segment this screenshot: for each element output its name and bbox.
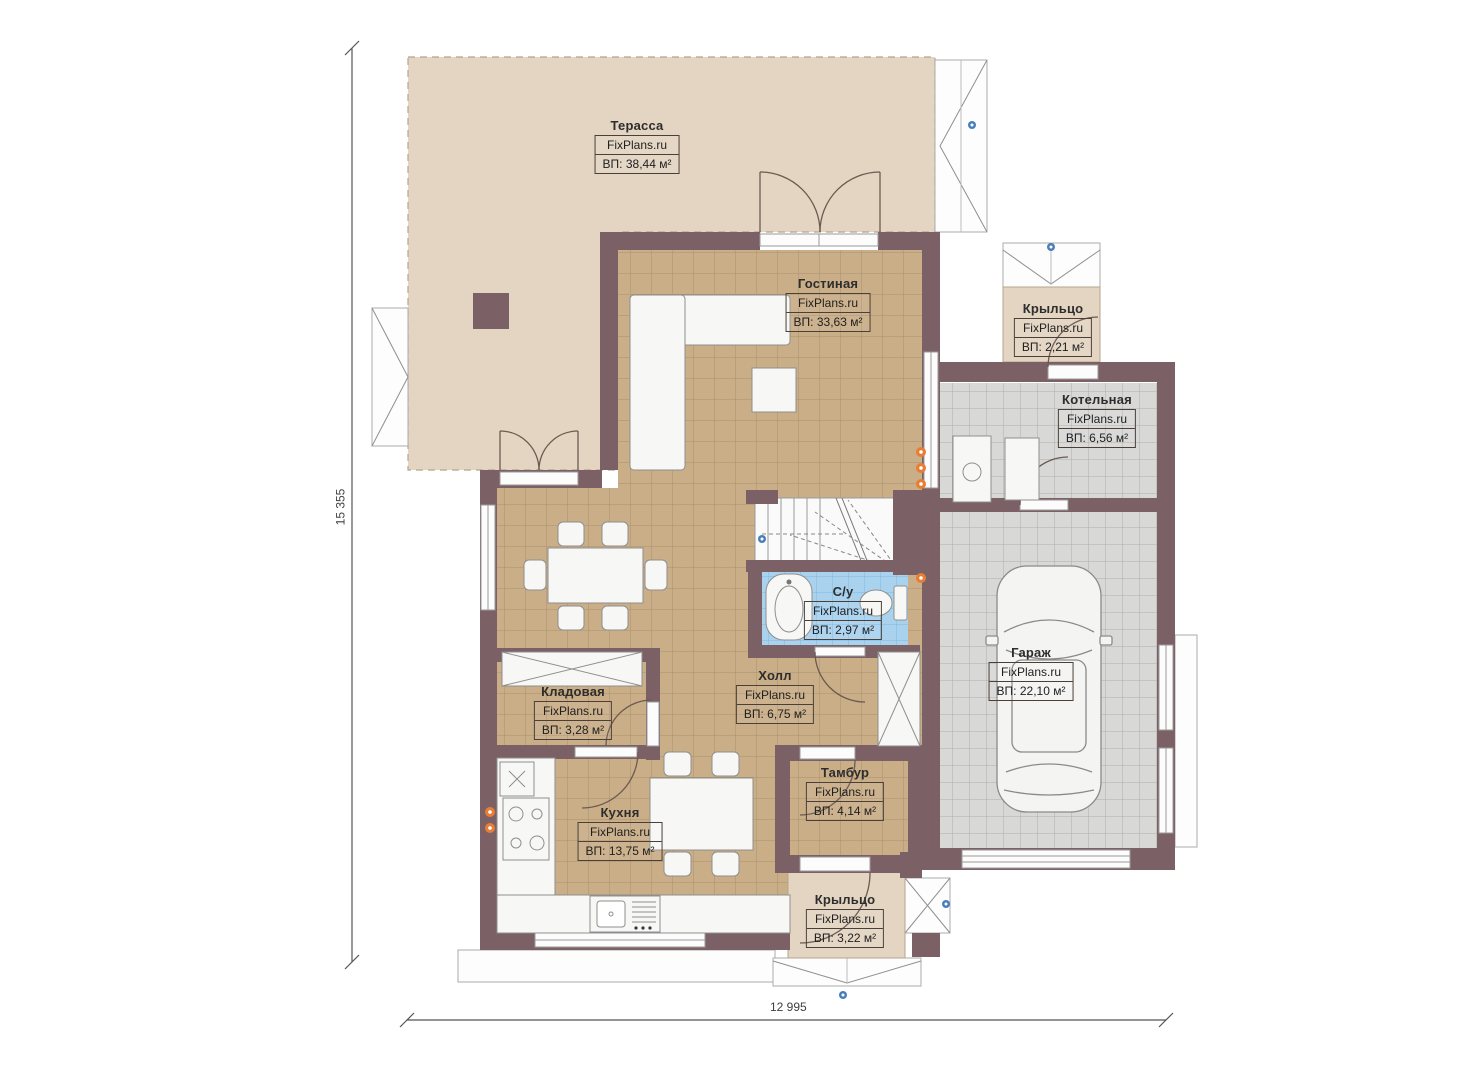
sofa-side [630,295,685,470]
room-info-box: FixPlans.ru ВП: 6,75 м² [736,685,814,724]
floor-plan-drawing [0,0,1474,1080]
room-info-box: FixPlans.ru ВП: 2,21 м² [1014,318,1092,357]
room-label-hall: Холл FixPlans.ru ВП: 6,75 м² [736,668,814,724]
room-info-box: FixPlans.ru ВП: 33,63 м² [786,293,871,332]
toilet-tank [894,586,907,620]
room-name: С/у [804,584,882,599]
room-label-garage: Гараж FixPlans.ru ВП: 22,10 м² [989,645,1074,701]
room-name: Гараж [989,645,1074,660]
room-info-box: FixPlans.ru ВП: 4,14 м² [806,782,884,821]
watermark: FixPlans.ru [1015,319,1091,337]
coffee-table [752,368,796,412]
watermark: FixPlans.ru [737,686,813,704]
room-label-kitchen: Кухня FixPlans.ru ВП: 13,75 м² [578,805,663,861]
room-info-box: FixPlans.ru ВП: 2,97 м² [804,601,882,640]
watermark: FixPlans.ru [787,294,870,312]
watermark: FixPlans.ru [805,602,881,620]
room-area: ВП: 3,22 м² [807,928,883,947]
room-name: Тамбур [806,765,884,780]
room-name: Крыльцо [806,892,884,907]
room-area: ВП: 2,97 м² [805,620,881,639]
stove [503,798,549,860]
room-info-box: FixPlans.ru ВП: 38,44 м² [595,135,680,174]
dimension-height: 15 355 [333,489,347,526]
room-area: ВП: 33,63 м² [787,312,870,331]
room-area: ВП: 13,75 м² [579,841,662,860]
watermark: FixPlans.ru [807,783,883,801]
room-area: ВП: 22,10 м² [990,681,1073,700]
room-label-living: Гостиная FixPlans.ru ВП: 33,63 м² [786,276,871,332]
boiler-unit [953,436,991,502]
room-name: Терасса [595,118,680,133]
dimension-width: 12 995 [770,1000,807,1014]
room-label-terrace: Терасса FixPlans.ru ВП: 38,44 м² [595,118,680,174]
room-name: Холл [736,668,814,683]
room-area: ВП: 38,44 м² [596,154,679,173]
watermark: FixPlans.ru [1059,410,1135,428]
dining-table [548,548,643,603]
room-info-box: FixPlans.ru ВП: 22,10 м² [989,662,1074,701]
watermark: FixPlans.ru [579,823,662,841]
floor-plan-canvas: Терасса FixPlans.ru ВП: 38,44 м² Гостина… [0,0,1474,1080]
room-info-box: FixPlans.ru ВП: 13,75 м² [578,822,663,861]
room-name: Котельная [1058,392,1136,407]
room-label-storage: Кладовая FixPlans.ru ВП: 3,28 м² [534,684,612,740]
room-label-porch-bottom: Крыльцо FixPlans.ru ВП: 3,22 м² [806,892,884,948]
room-name: Гостиная [786,276,871,291]
room-info-box: FixPlans.ru ВП: 6,56 м² [1058,409,1136,448]
room-info-box: FixPlans.ru ВП: 3,22 м² [806,909,884,948]
room-name: Кухня [578,805,663,820]
room-area: ВП: 4,14 м² [807,801,883,820]
room-label-bathroom: С/у FixPlans.ru ВП: 2,97 м² [804,584,882,640]
watermark: FixPlans.ru [535,702,611,720]
watermark: FixPlans.ru [990,663,1073,681]
room-area: ВП: 6,56 м² [1059,428,1135,447]
room-name: Крыльцо [1014,301,1092,316]
watermark: FixPlans.ru [807,910,883,928]
room-label-boiler: Котельная FixPlans.ru ВП: 6,56 м² [1058,392,1136,448]
watermark: FixPlans.ru [596,136,679,154]
terrace-column [473,293,509,329]
room-area: ВП: 2,21 м² [1015,337,1091,356]
room-info-box: FixPlans.ru ВП: 3,28 м² [534,701,612,740]
room-area: ВП: 6,75 м² [737,704,813,723]
kitchen-table [650,778,753,850]
staircase [755,498,902,570]
water-heater [1005,438,1039,500]
room-area: ВП: 3,28 м² [535,720,611,739]
room-label-tambur: Тамбур FixPlans.ru ВП: 4,14 м² [806,765,884,821]
room-label-porch-top: Крыльцо FixPlans.ru ВП: 2,21 м² [1014,301,1092,357]
room-name: Кладовая [534,684,612,699]
